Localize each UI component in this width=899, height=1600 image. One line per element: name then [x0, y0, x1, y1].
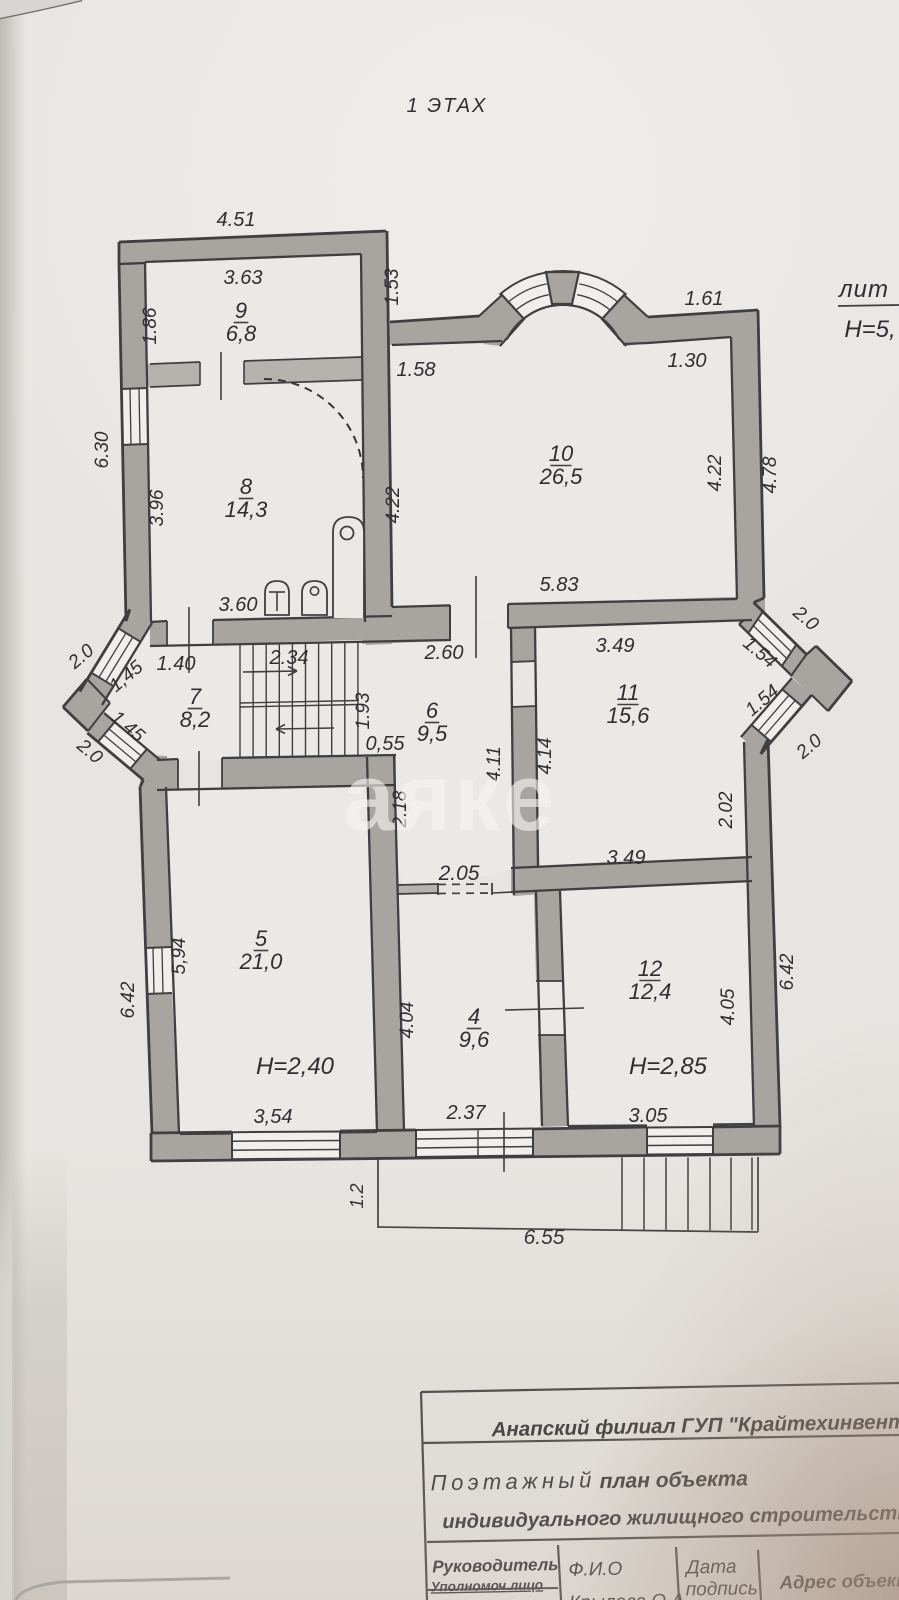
- svg-text:5,94: 5,94: [169, 938, 190, 975]
- svg-text:11: 11: [617, 680, 640, 705]
- svg-text:15,6: 15,6: [607, 703, 651, 728]
- svg-text:2.02: 2.02: [716, 791, 737, 829]
- svg-text:7: 7: [189, 684, 202, 709]
- svg-text:Н=5,: Н=5,: [844, 316, 895, 343]
- svg-text:1 ЭТАХ: 1 ЭТАХ: [407, 95, 488, 117]
- svg-text:1.93: 1.93: [353, 692, 374, 729]
- svg-text:6.30: 6.30: [92, 431, 113, 468]
- svg-text:3.96: 3.96: [147, 489, 168, 526]
- svg-text:14,3: 14,3: [225, 497, 269, 522]
- svg-text:аяке: аяке: [343, 743, 557, 850]
- svg-text:1.53: 1.53: [382, 268, 403, 305]
- svg-text:6.42: 6.42: [118, 981, 139, 1018]
- svg-text:21,0: 21,0: [239, 949, 284, 974]
- svg-text:4: 4: [468, 1004, 480, 1029]
- svg-text:1.61: 1.61: [685, 288, 724, 310]
- svg-text:3.60: 3.60: [219, 594, 258, 616]
- svg-text:6,8: 6,8: [226, 321, 257, 346]
- svg-text:4.78: 4.78: [760, 456, 781, 493]
- svg-text:9,6: 9,6: [459, 1027, 490, 1052]
- svg-text:1.86: 1.86: [140, 307, 161, 344]
- svg-text:лит: лит: [837, 276, 889, 303]
- svg-text:4.04: 4.04: [397, 1002, 418, 1039]
- svg-text:Н=2,40: Н=2,40: [256, 1053, 335, 1080]
- svg-text:3.49: 3.49: [596, 635, 635, 657]
- svg-text:9,5: 9,5: [417, 721, 448, 746]
- svg-text:3.49: 3.49: [607, 847, 646, 869]
- svg-text:1.40: 1.40: [157, 653, 196, 675]
- svg-text:3.63: 3.63: [224, 267, 263, 289]
- svg-text:1.30: 1.30: [668, 350, 707, 372]
- svg-text:8: 8: [240, 474, 253, 499]
- svg-text:9: 9: [235, 298, 247, 323]
- svg-text:4.22: 4.22: [383, 486, 404, 523]
- svg-text:3,54: 3,54: [254, 1106, 293, 1128]
- svg-text:6: 6: [426, 698, 439, 723]
- svg-text:2.60: 2.60: [424, 642, 464, 664]
- svg-text:26,5: 26,5: [539, 464, 584, 489]
- svg-text:2.34: 2.34: [269, 647, 309, 669]
- svg-text:2.37: 2.37: [446, 1102, 487, 1124]
- svg-text:5.83: 5.83: [540, 574, 579, 596]
- svg-text:5: 5: [255, 926, 268, 951]
- svg-text:1.58: 1.58: [397, 359, 436, 381]
- svg-text:8,2: 8,2: [180, 707, 211, 732]
- svg-text:4.51: 4.51: [217, 209, 256, 231]
- svg-text:2.05: 2.05: [438, 862, 480, 885]
- svg-text:10: 10: [549, 441, 574, 466]
- svg-text:4.22: 4.22: [705, 454, 726, 491]
